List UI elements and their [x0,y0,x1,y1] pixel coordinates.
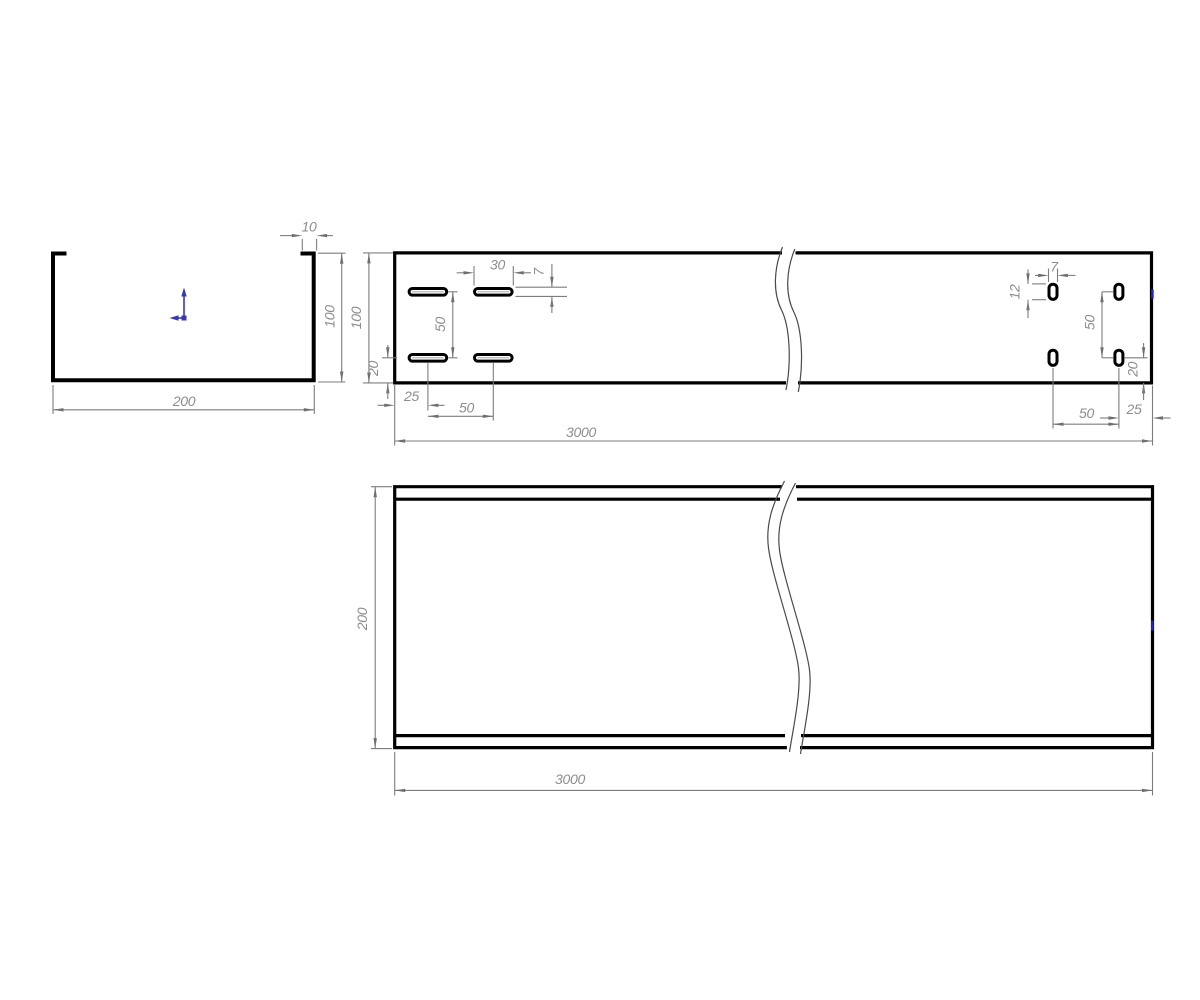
svg-text:3000: 3000 [566,424,596,440]
svg-text:200: 200 [172,393,196,409]
svg-text:100: 100 [322,305,338,328]
svg-text:20: 20 [365,361,381,377]
svg-text:200: 200 [354,607,370,631]
svg-text:100: 100 [348,306,364,329]
svg-text:50: 50 [459,399,474,415]
svg-text:25: 25 [403,388,419,404]
svg-text:50: 50 [1079,405,1094,421]
svg-text:50: 50 [1081,315,1097,330]
svg-text:10: 10 [302,219,317,235]
svg-text:50: 50 [432,317,448,332]
svg-text:3000: 3000 [555,771,585,787]
svg-text:25: 25 [1126,401,1142,417]
svg-text:12: 12 [1007,284,1023,299]
svg-text:30: 30 [490,256,505,272]
svg-text:20: 20 [1125,361,1141,377]
